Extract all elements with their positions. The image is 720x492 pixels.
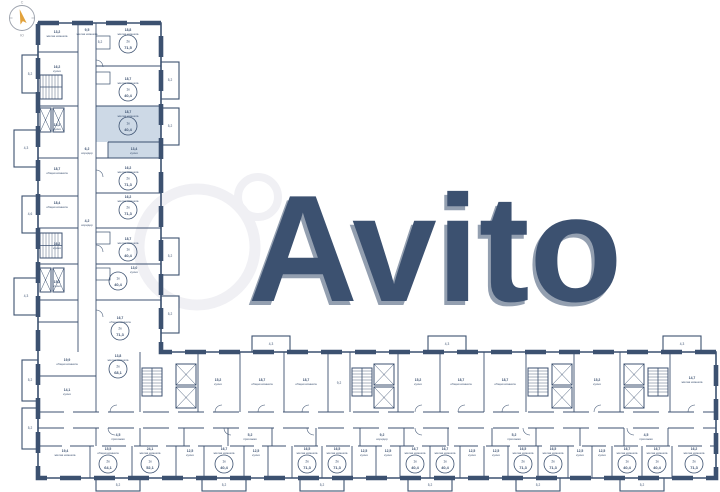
room-label: кухня — [186, 453, 194, 457]
room-label: прихожая — [243, 437, 257, 441]
unit-rooms-label: 2к — [118, 326, 122, 330]
room-label: жилая комната — [647, 451, 668, 455]
unit-area-label: 40,4 — [411, 465, 419, 470]
door-arc — [594, 405, 601, 412]
unit-rooms-label: 1к — [625, 459, 629, 463]
unit-badge: 2к71,3 — [119, 201, 137, 219]
balcony-area-label: 5,2 — [168, 124, 173, 128]
room-label: общая комната — [56, 362, 78, 366]
unit-badge: 2к71,3 — [111, 322, 129, 340]
unit-rooms-label: 2к — [692, 459, 696, 463]
unit-rooms-label: 1к — [655, 459, 659, 463]
room-label: общая комната — [494, 382, 516, 386]
balcony-area-label: 4,3 — [24, 294, 29, 298]
door-arc — [415, 405, 422, 412]
compass-north-label: С — [21, 1, 24, 5]
balcony-area-label: 5,2 — [168, 312, 173, 316]
room-label: жилая комната — [543, 451, 564, 455]
unit-badge: 1к40,4 — [618, 455, 636, 473]
room-label: кухня — [214, 382, 222, 386]
door-arc — [523, 428, 530, 435]
unit-area-label: 68,1 — [114, 370, 122, 375]
unit-badge: 2к71,3 — [514, 455, 532, 473]
unit-badge: 1к40,4 — [119, 83, 137, 101]
compass-icon: С Ю — [10, 1, 35, 38]
elevator-shaft — [374, 364, 394, 385]
room-label: жилая комната — [684, 451, 705, 455]
room-label: жилая комната — [214, 451, 235, 455]
unit-rooms-label: 2к — [521, 459, 525, 463]
stair-core — [352, 368, 372, 396]
room-label: жилая комната — [435, 451, 456, 455]
door-arc — [302, 405, 309, 412]
unit-rooms-label: 1к — [126, 87, 130, 91]
room-label: жилая комната — [617, 451, 638, 455]
room-label: жилая комната — [513, 451, 534, 455]
room-label: коридор — [81, 223, 93, 227]
room-label: кухня — [360, 453, 368, 457]
elevator-shaft — [374, 387, 394, 408]
door-arc — [627, 428, 634, 435]
stair-core — [648, 368, 668, 396]
room-label: кухня — [468, 453, 476, 457]
room-label: кухня — [593, 382, 601, 386]
stair-core — [528, 368, 548, 396]
room-label: кухня — [252, 453, 260, 457]
door-arc — [458, 405, 465, 412]
unit-area-label: 71,3 — [333, 465, 341, 470]
balcony-area-label: 4,3 — [269, 342, 274, 346]
elevator-shaft — [552, 364, 572, 385]
balcony-area-label: 5,2 — [168, 254, 173, 258]
unit-rooms-label: 1к — [126, 121, 130, 125]
unit-area-label: 40,4 — [441, 465, 449, 470]
room-label: общая комната — [295, 382, 317, 386]
elevator-shaft — [40, 108, 51, 132]
room-label: жилая комната — [140, 451, 161, 455]
balcony-area-label: 5,2 — [222, 483, 227, 487]
unit-badge: 2к64,1 — [99, 455, 117, 473]
unit-badge: 2к71,3 — [544, 455, 562, 473]
unit-badge: 1к52,1 — [141, 455, 159, 473]
door-arc — [110, 405, 117, 412]
elevator-shaft — [176, 364, 196, 385]
unit-rooms-label: 1к — [116, 276, 120, 280]
unit-rooms-label: 2к — [335, 459, 339, 463]
room-label: жилая комната — [47, 34, 68, 38]
unit-area-label: 71,3 — [303, 465, 311, 470]
room-label: кухня — [414, 382, 422, 386]
unit-badge: 2к71,3 — [298, 455, 316, 473]
unit-area-label: 40,4 — [124, 253, 132, 258]
unit-area-label: 52,1 — [146, 465, 154, 470]
room-label: прихожая — [111, 437, 125, 441]
unit-badge: 1к40,4 — [215, 455, 233, 473]
elevator-shaft — [40, 268, 51, 292]
balcony-area-label: 5,2 — [28, 378, 33, 382]
room-label: жилая комната — [682, 380, 703, 384]
unit-rooms-label: 2к — [126, 205, 130, 209]
room-label: кухня — [130, 151, 138, 155]
unit-rooms-label: 2к — [126, 176, 130, 180]
unit-rooms-label: 1к — [126, 247, 130, 251]
unit-rooms-label: 2к — [116, 364, 120, 368]
balcony-area-label: 9,2 — [337, 381, 342, 385]
unit-rooms-label: 2к — [305, 459, 309, 463]
balcony-area-label: 4,3 — [680, 342, 685, 346]
door-arc — [96, 170, 103, 177]
room-label: кухня — [53, 69, 61, 73]
room-label: общая комната — [450, 382, 472, 386]
stair-core — [142, 368, 162, 396]
unit-area-label: 71,3 — [116, 332, 124, 337]
room-label: кухня — [53, 284, 61, 288]
elevator-shaft — [624, 387, 644, 408]
floor-plan-image: Avito Avito 13,2жилая комната9,5жилая ко… — [0, 0, 720, 492]
door-arc — [502, 405, 509, 412]
unit-rooms-label: 1к — [443, 459, 447, 463]
room-label: общая комната — [46, 171, 68, 175]
room-label: кухня — [130, 270, 138, 274]
elevator-shaft — [624, 364, 644, 385]
balcony-area-label: 5,2 — [28, 72, 33, 76]
unit-area-label: 40,4 — [124, 93, 132, 98]
door-arc — [108, 428, 115, 435]
door-arc — [224, 428, 231, 435]
unit-rooms-label: 2к — [551, 459, 555, 463]
room-label: коридор — [81, 151, 93, 155]
stair-core — [40, 75, 62, 99]
balcony-area-label: 5,2 — [98, 40, 103, 44]
balcony-area-label: 4,3 — [445, 342, 450, 346]
avito-watermark: Avito Avito — [139, 164, 622, 338]
door-arc — [415, 428, 422, 435]
unit-rooms-label: 2к — [126, 39, 130, 43]
room-label: кухня — [53, 127, 61, 131]
elevator-shaft — [176, 387, 196, 408]
unit-badge: 1к40,4 — [109, 272, 127, 290]
compass-south-label: Ю — [20, 34, 24, 38]
room-label: кухня — [53, 246, 61, 250]
room-label: жилая комната — [77, 32, 98, 36]
room-label: жилая комната — [405, 451, 426, 455]
unit-area-label: 71,5 — [124, 45, 132, 50]
balcony-area-label: 5,2 — [640, 483, 645, 487]
bathroom — [96, 72, 110, 84]
unit-rooms-label: 2к — [106, 459, 110, 463]
room-label: кухня — [384, 453, 392, 457]
unit-area-label: 71,3 — [519, 465, 527, 470]
room-label: прихожая — [507, 437, 521, 441]
room-label: общая комната — [46, 205, 68, 209]
unit-area-label: 40,4 — [114, 282, 122, 287]
balcony-area-label: 5,2 — [536, 483, 541, 487]
unit-badge: 2к68,1 — [109, 360, 127, 378]
room-label: коридор — [376, 437, 388, 441]
unit-badge: 2к71,3 — [685, 455, 703, 473]
unit-badge: 2к71,5 — [119, 35, 137, 53]
door-arc — [96, 310, 103, 317]
room-label: кухня — [598, 453, 606, 457]
unit-area-label: 40,4 — [623, 465, 631, 470]
balcony-area-label: 4,6 — [28, 212, 33, 216]
unit-rooms-label: 1к — [222, 459, 226, 463]
bathroom — [96, 232, 110, 244]
door-arc — [215, 405, 222, 412]
room-label: прихожая — [639, 437, 653, 441]
unit-area-label: 40,4 — [124, 127, 132, 132]
room-label: общая комната — [97, 451, 119, 455]
room-label: общая комната — [251, 382, 273, 386]
unit-area-label: 71,3 — [124, 211, 132, 216]
balcony-area-label: 4,3 — [24, 146, 29, 150]
elevator-shaft — [552, 387, 572, 408]
balcony-area-label: 5,2 — [320, 483, 325, 487]
unit-area-label: 71,3 — [549, 465, 557, 470]
balcony-area-label: 5,2 — [28, 426, 33, 430]
room-label: жилая комната — [297, 451, 318, 455]
balcony-area-label: 5,2 — [116, 483, 121, 487]
room-label: кухня — [576, 453, 584, 457]
unit-badge: 2к71,3 — [328, 455, 346, 473]
watermark-text: Avito — [248, 164, 622, 334]
unit-area-label: 71,3 — [124, 182, 132, 187]
room-label: жилая комната — [55, 453, 76, 457]
unit-badge: 1к40,4 — [406, 455, 424, 473]
room-label: кухня — [63, 392, 71, 396]
door-arc — [688, 405, 695, 412]
unit-area-label: 71,3 — [690, 465, 698, 470]
room-label: кухня — [492, 453, 500, 457]
unit-area-label: 64,1 — [104, 465, 112, 470]
unit-area-label: 40,4 — [653, 465, 661, 470]
balcony-area-label: 5,2 — [168, 78, 173, 82]
unit-badge: 1к40,4 — [436, 455, 454, 473]
unit-rooms-label: 1к — [413, 459, 417, 463]
door-arc — [96, 245, 103, 252]
door-arc — [258, 405, 265, 412]
room-label: жилая комната — [327, 451, 348, 455]
bathroom — [96, 268, 110, 280]
door-arc — [307, 428, 314, 435]
unit-rooms-label: 1к — [148, 459, 152, 463]
unit-badge: 2к71,3 — [119, 172, 137, 190]
unit-badge: 1к40,4 — [648, 455, 666, 473]
balcony-area-label: 5,2 — [428, 483, 433, 487]
unit-area-label: 40,4 — [220, 465, 228, 470]
